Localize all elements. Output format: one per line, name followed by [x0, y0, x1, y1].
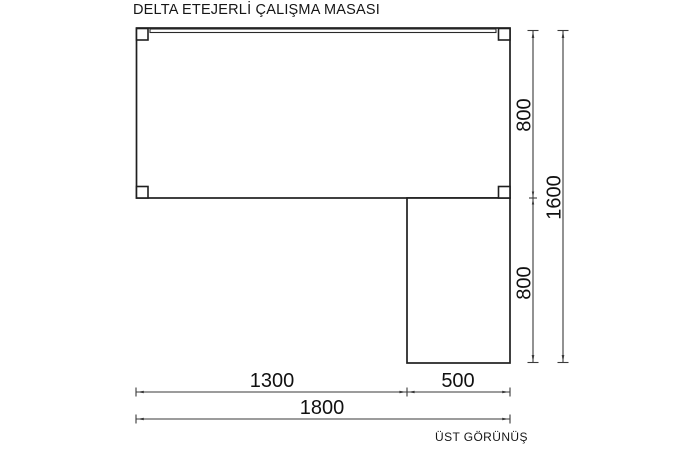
leg-bottom-right [499, 187, 511, 199]
dim-label-width-main: 1300 [250, 370, 295, 392]
arrowhead-up [562, 31, 565, 38]
dim-label-width-total: 1800 [300, 397, 345, 419]
arrowhead-mid-left [399, 391, 406, 394]
arrowhead-down [562, 355, 565, 362]
view-name-label: ÜST GÖRÜNÜŞ [435, 430, 528, 444]
arrowhead-up [532, 31, 535, 38]
dimension-depth-segments: 800 800 [514, 30, 539, 363]
arrowhead-down-mid [532, 192, 534, 198]
technical-drawing-top-view: 800 800 1600 1300 500 [0, 0, 700, 450]
desk-outline [137, 28, 511, 363]
dimension-width-segments: 1300 500 [136, 370, 510, 397]
leg-top-left [137, 29, 149, 41]
arrowhead-up-mid [532, 199, 534, 205]
arrowhead-mid-right [408, 391, 415, 394]
arrowhead-left [137, 391, 144, 394]
modesty-panel-strip [150, 29, 496, 33]
drawing-sheet: DELTA ETEJERLİ ÇALIŞMA MASASI 800 800 [0, 0, 700, 450]
arrowhead-down [532, 355, 535, 362]
dim-label-depth-bottom: 800 [514, 266, 536, 299]
dim-label-width-return: 500 [441, 370, 474, 392]
desk-return-surface [407, 198, 510, 363]
desk-main-surface [137, 28, 511, 198]
leg-top-right [499, 29, 511, 41]
dim-label-depth-top: 800 [514, 98, 536, 131]
dimension-width-total: 1800 [136, 397, 510, 424]
dim-label-depth-total: 1600 [544, 175, 566, 220]
dimension-depth-total: 1600 [544, 30, 569, 363]
arrowhead-left [137, 418, 144, 421]
arrowhead-right [502, 418, 509, 421]
leg-bottom-left [137, 187, 149, 199]
arrowhead-right [502, 391, 509, 394]
